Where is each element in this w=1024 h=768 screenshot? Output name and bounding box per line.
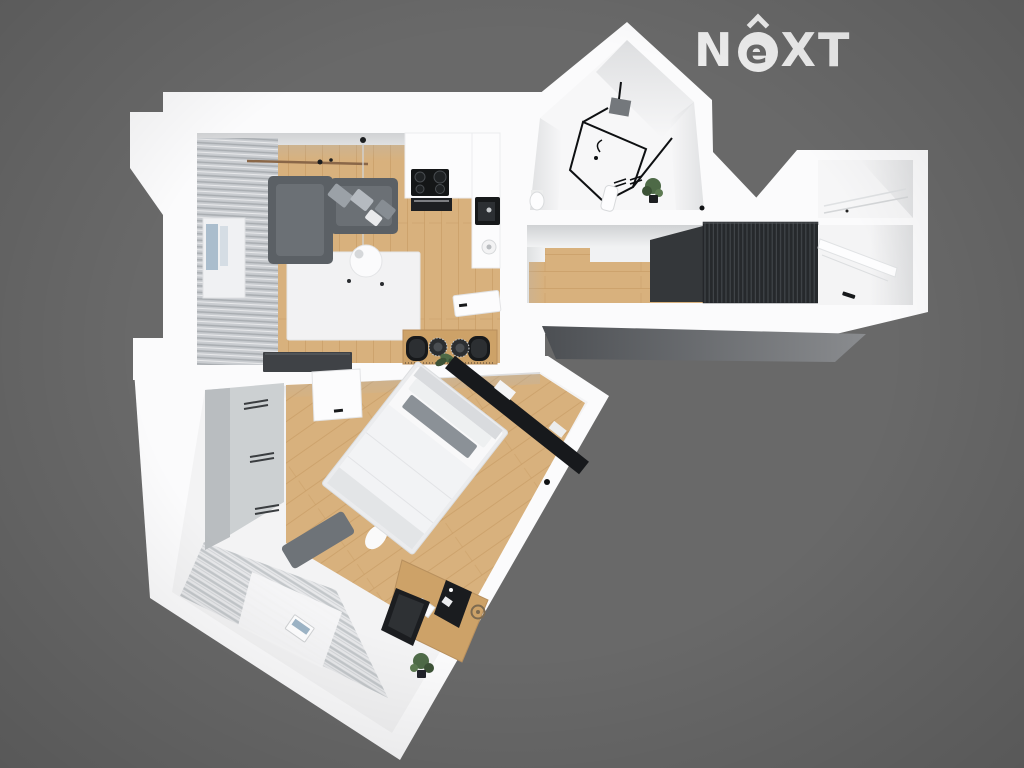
window	[203, 218, 245, 298]
kitchen-sink	[475, 197, 500, 225]
entrance-area	[818, 225, 913, 305]
logo-letter-n: N	[694, 24, 735, 76]
living-room	[197, 133, 501, 372]
cooktop	[411, 169, 452, 211]
bedroom-door-handle	[544, 479, 550, 485]
hanging-cabinet	[312, 369, 362, 421]
logo-e-mark: e	[738, 32, 778, 72]
logo-letter-e: e	[738, 32, 778, 72]
closet-room	[818, 160, 913, 218]
toilet	[530, 190, 544, 210]
render-stage	[0, 0, 1024, 768]
kettle	[482, 240, 496, 254]
next-logo: N e XT	[694, 14, 851, 76]
rail-bracket	[329, 158, 333, 162]
logo-letters-xt: XT	[781, 24, 852, 76]
floor-plan-svg	[0, 0, 1024, 768]
slatted-wardrobe	[703, 222, 818, 303]
rail-bracket	[318, 160, 323, 165]
oven-front	[411, 198, 452, 211]
bathroom-door-handle	[700, 206, 705, 211]
sideboard	[263, 352, 352, 372]
floor-plan-screenshot: { "logo": { "n": "N", "e": "e", "xt": "X…	[0, 0, 1024, 768]
